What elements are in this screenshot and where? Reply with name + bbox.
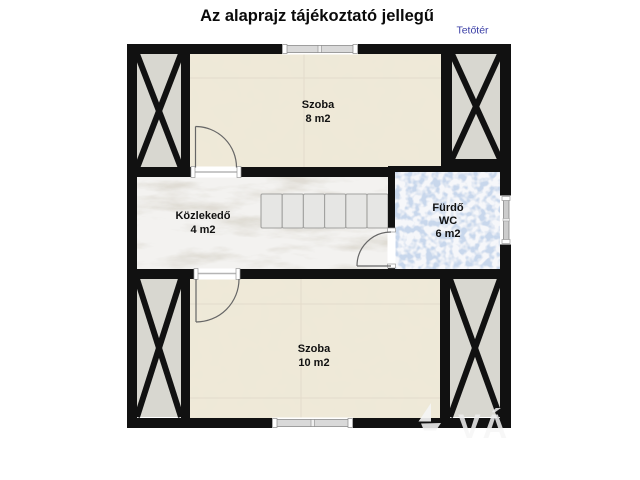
svg-text:Fürdő: Fürdő xyxy=(432,202,463,214)
svg-text:Közlekedő: Közlekedő xyxy=(175,210,230,222)
svg-text:Tetőtér: Tetőtér xyxy=(456,25,489,37)
svg-text:Szoba: Szoba xyxy=(298,343,331,355)
svg-text:6 m2: 6 m2 xyxy=(435,228,460,240)
svg-text:4 m2: 4 m2 xyxy=(190,224,215,236)
svg-text:WC: WC xyxy=(439,215,457,227)
svg-text:Az alaprajz tájékoztató jelleg: Az alaprajz tájékoztató jellegű xyxy=(200,7,434,25)
svg-text:10 m2: 10 m2 xyxy=(298,357,329,369)
svg-text:Szoba: Szoba xyxy=(302,99,335,111)
svg-text:8 m2: 8 m2 xyxy=(305,113,330,125)
